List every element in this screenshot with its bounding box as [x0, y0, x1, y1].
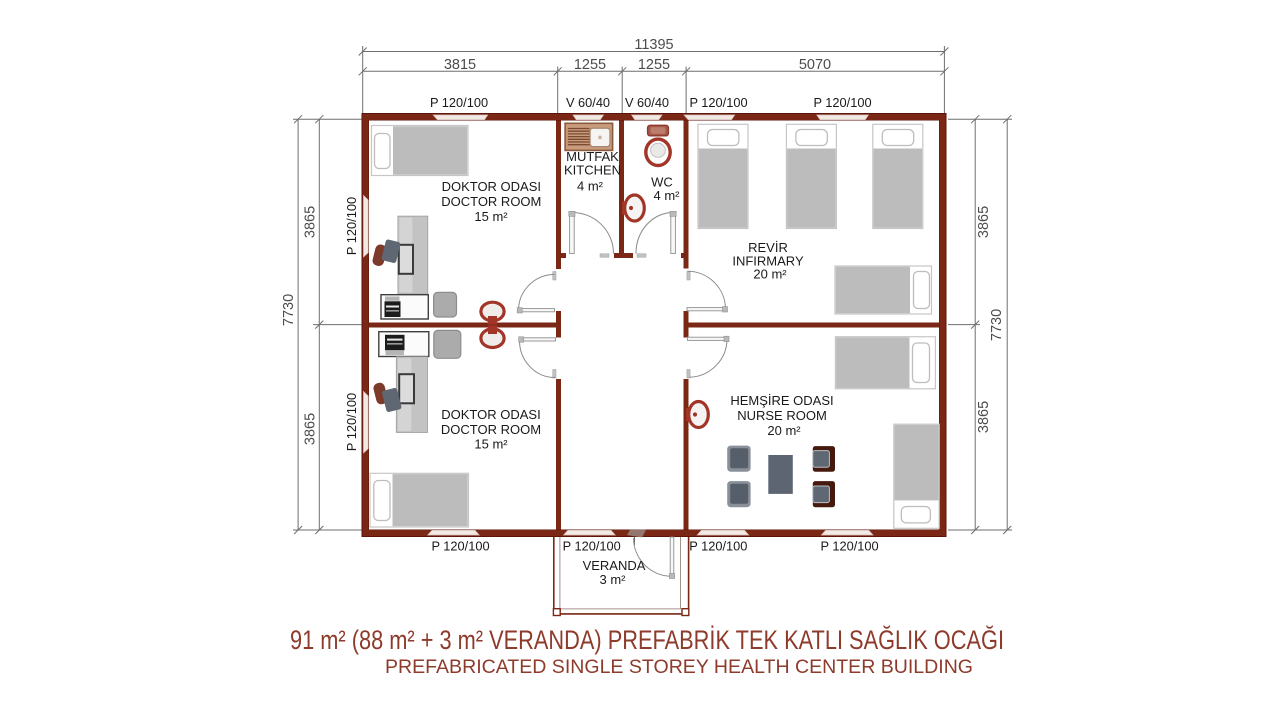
svg-text:7730: 7730: [989, 309, 1005, 341]
svg-text:7730: 7730: [281, 294, 297, 326]
svg-text:91 m² (88 m² + 3 m² VERANDA) P: 91 m² (88 m² + 3 m² VERANDA) PREFABRİK T…: [290, 625, 1004, 655]
svg-text:P 120/100: P 120/100: [563, 539, 621, 554]
svg-text:V 60/40: V 60/40: [566, 95, 610, 110]
svg-text:P 120/100: P 120/100: [813, 95, 871, 110]
svg-text:VERANDA: VERANDA: [583, 558, 646, 573]
svg-text:11395: 11395: [634, 37, 673, 53]
svg-text:P 120/100: P 120/100: [689, 95, 747, 110]
svg-text:1255: 1255: [574, 57, 606, 73]
svg-text:3865: 3865: [303, 413, 319, 445]
svg-text:3865: 3865: [976, 206, 992, 238]
svg-text:20 m²: 20 m²: [767, 423, 801, 438]
svg-text:NURSE ROOM: NURSE ROOM: [737, 408, 827, 423]
svg-text:DOKTOR ODASI: DOKTOR ODASI: [442, 179, 541, 194]
svg-text:3865: 3865: [303, 206, 319, 238]
svg-text:4 m²: 4 m²: [577, 179, 604, 194]
svg-text:15 m²: 15 m²: [474, 209, 508, 224]
svg-text:P 120/100: P 120/100: [344, 197, 359, 255]
svg-text:P 120/100: P 120/100: [344, 393, 359, 451]
svg-text:4 m²: 4 m²: [654, 188, 681, 203]
svg-text:P 120/100: P 120/100: [689, 539, 747, 554]
svg-text:V 60/40: V 60/40: [625, 95, 669, 110]
svg-text:DOKTOR ODASI: DOKTOR ODASI: [441, 407, 540, 422]
svg-text:3 m²: 3 m²: [600, 572, 627, 587]
svg-text:3865: 3865: [976, 401, 992, 433]
svg-text:3815: 3815: [444, 57, 476, 73]
svg-text:5070: 5070: [799, 57, 831, 73]
svg-text:P 120/100: P 120/100: [821, 539, 879, 554]
svg-text:1255: 1255: [638, 57, 670, 73]
svg-text:DOCTOR ROOM: DOCTOR ROOM: [441, 194, 541, 209]
svg-text:HEMŞİRE ODASI: HEMŞİRE ODASI: [730, 393, 833, 408]
svg-text:20 m²: 20 m²: [753, 267, 787, 282]
svg-text:DOCTOR ROOM: DOCTOR ROOM: [441, 422, 541, 437]
svg-text:P 120/100: P 120/100: [431, 539, 489, 554]
svg-text:PREFABRICATED SINGLE STOREY HE: PREFABRICATED SINGLE STOREY HEALTH CENTE…: [385, 656, 973, 678]
svg-text:15 m²: 15 m²: [474, 437, 508, 452]
svg-text:KITCHEN: KITCHEN: [564, 163, 621, 178]
svg-text:P 120/100: P 120/100: [430, 95, 488, 110]
